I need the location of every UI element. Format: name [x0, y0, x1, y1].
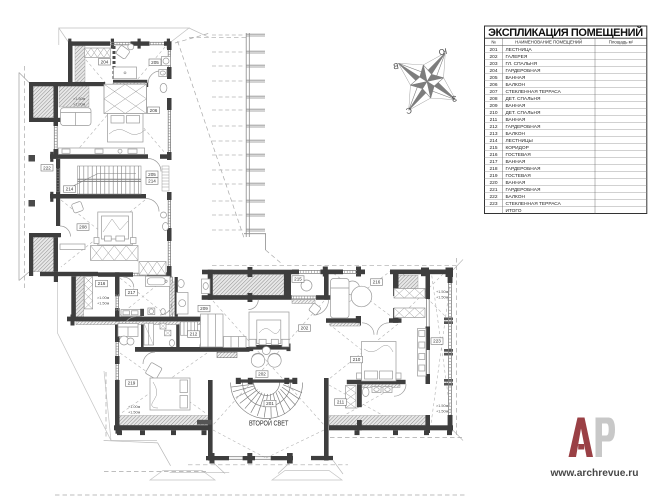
- svg-text:ГАРДЕРОБНАЯ: ГАРДЕРОБНАЯ: [506, 68, 541, 74]
- svg-text:220: 220: [489, 180, 497, 186]
- svg-text:ГАРДЕРОБНАЯ: ГАРДЕРОБНАЯ: [506, 187, 541, 193]
- svg-text:214: 214: [148, 179, 156, 184]
- svg-text:212: 212: [489, 124, 497, 130]
- svg-text:213: 213: [489, 131, 497, 137]
- svg-text:205: 205: [151, 60, 159, 65]
- svg-text:214: 214: [489, 138, 497, 144]
- svg-text:ВТОРОЙ СВЕТ: ВТОРОЙ СВЕТ: [249, 418, 289, 427]
- svg-text:206: 206: [150, 108, 158, 113]
- svg-text:www.archrevue.ru: www.archrevue.ru: [550, 468, 639, 479]
- svg-text:>1.50м: >1.50м: [73, 97, 86, 101]
- svg-text:211: 211: [337, 400, 345, 405]
- svg-text:221: 221: [489, 187, 497, 193]
- svg-text:№: №: [491, 40, 496, 45]
- svg-text:ИТОГО: ИТОГО: [506, 208, 522, 214]
- svg-text:БАЛКОН: БАЛКОН: [506, 131, 526, 137]
- svg-text:СТЕКЛЕННАЯ ТЕРРАСА: СТЕКЛЕННАЯ ТЕРРАСА: [506, 89, 562, 95]
- svg-text:208: 208: [489, 96, 497, 102]
- svg-text:ГОСТЕВАЯ: ГОСТЕВАЯ: [506, 152, 532, 158]
- svg-text:216: 216: [373, 280, 381, 285]
- svg-text:209: 209: [200, 306, 208, 311]
- svg-text:ВАННАЯ: ВАННАЯ: [506, 75, 526, 81]
- svg-text:219: 219: [489, 173, 497, 179]
- svg-text:КОРИДОР: КОРИДОР: [506, 145, 529, 151]
- svg-text:>1.00м: >1.00м: [73, 103, 86, 107]
- svg-text:205: 205: [148, 172, 156, 177]
- svg-text:ДЕТ. СПАЛЬНЯ: ДЕТ. СПАЛЬНЯ: [506, 96, 541, 102]
- svg-text:ГАЛЕРЕЯ: ГАЛЕРЕЯ: [506, 54, 528, 60]
- svg-text:202: 202: [258, 372, 266, 377]
- svg-text:ЛЕСТНИЦЫ: ЛЕСТНИЦЫ: [506, 138, 533, 144]
- svg-text:+1.50м: +1.50м: [436, 410, 449, 414]
- svg-text:215: 215: [489, 145, 497, 151]
- svg-text:204: 204: [489, 68, 497, 74]
- svg-text:+1.00м: +1.00м: [128, 405, 141, 409]
- svg-text:202: 202: [489, 54, 497, 60]
- svg-text:211: 211: [490, 117, 498, 123]
- svg-text:>1.00м: >1.00м: [97, 296, 110, 300]
- svg-text:>1.50м: >1.50м: [436, 404, 449, 408]
- svg-text:222: 222: [489, 194, 497, 200]
- svg-text:ГОСТЕВАЯ: ГОСТЕВАЯ: [506, 173, 532, 179]
- svg-text:ВАННАЯ: ВАННАЯ: [506, 117, 526, 123]
- svg-text:203: 203: [489, 61, 497, 67]
- svg-text:СТЕКЛЕННАЯ ТЕРРАСА: СТЕКЛЕННАЯ ТЕРРАСА: [506, 201, 562, 207]
- svg-text:Площадь м²: Площадь м²: [609, 40, 634, 45]
- svg-text:207: 207: [489, 89, 497, 95]
- svg-text:217: 217: [128, 290, 136, 295]
- svg-text:+1.50м: +1.50м: [436, 290, 449, 294]
- svg-text:БАЛКОН: БАЛКОН: [506, 82, 526, 88]
- svg-text:222: 222: [43, 165, 51, 170]
- svg-text:ГАРДЕРОБНАЯ: ГАРДЕРОБНАЯ: [506, 166, 541, 172]
- svg-text:204: 204: [101, 59, 109, 64]
- svg-text:223: 223: [489, 201, 497, 207]
- svg-text:219: 219: [128, 381, 136, 386]
- svg-text:ЛЕСТНИЦА: ЛЕСТНИЦА: [506, 47, 533, 53]
- svg-text:210: 210: [489, 110, 497, 116]
- svg-text:БАЛКОН: БАЛКОН: [506, 194, 526, 200]
- svg-text:201: 201: [266, 401, 274, 406]
- svg-text:205: 205: [489, 75, 497, 81]
- svg-text:212: 212: [190, 332, 198, 337]
- svg-text:202: 202: [301, 326, 309, 331]
- svg-text:223: 223: [433, 339, 441, 344]
- svg-text:+1.50м: +1.50м: [436, 296, 449, 300]
- svg-text:217: 217: [489, 159, 497, 165]
- svg-text:ДЕТ. СПАЛЬНЯ: ДЕТ. СПАЛЬНЯ: [506, 110, 541, 116]
- svg-text:ВАННАЯ: ВАННАЯ: [506, 180, 526, 186]
- svg-text:ВАННАЯ: ВАННАЯ: [506, 103, 526, 109]
- svg-text:218: 218: [489, 166, 497, 172]
- svg-text:206: 206: [489, 82, 497, 88]
- svg-text:216: 216: [489, 152, 497, 158]
- svg-text:+1.50м: +1.50м: [128, 411, 141, 415]
- svg-text:ЭКСПЛИКАЦИЯ ПОМЕЩЕНИЙ: ЭКСПЛИКАЦИЯ ПОМЕЩЕНИЙ: [488, 26, 643, 39]
- svg-text:ГАРДЕРОБНАЯ: ГАРДЕРОБНАЯ: [506, 124, 541, 130]
- svg-text:209: 209: [489, 103, 497, 109]
- svg-text:ВАННАЯ: ВАННАЯ: [506, 159, 526, 165]
- svg-text:ГЛ. СПАЛЬНЯ: ГЛ. СПАЛЬНЯ: [506, 61, 538, 67]
- svg-text:216: 216: [98, 281, 106, 286]
- svg-text:215: 215: [294, 277, 302, 282]
- svg-text:208: 208: [79, 225, 87, 230]
- svg-text:210: 210: [353, 357, 361, 362]
- svg-text:201: 201: [489, 47, 497, 53]
- svg-text:НАИМЕНОВАНИЕ ПОМЕЩЕНИЙ: НАИМЕНОВАНИЕ ПОМЕЩЕНИЙ: [515, 40, 582, 45]
- svg-text:214: 214: [66, 187, 74, 192]
- svg-text:+1.50м: +1.50м: [97, 302, 110, 306]
